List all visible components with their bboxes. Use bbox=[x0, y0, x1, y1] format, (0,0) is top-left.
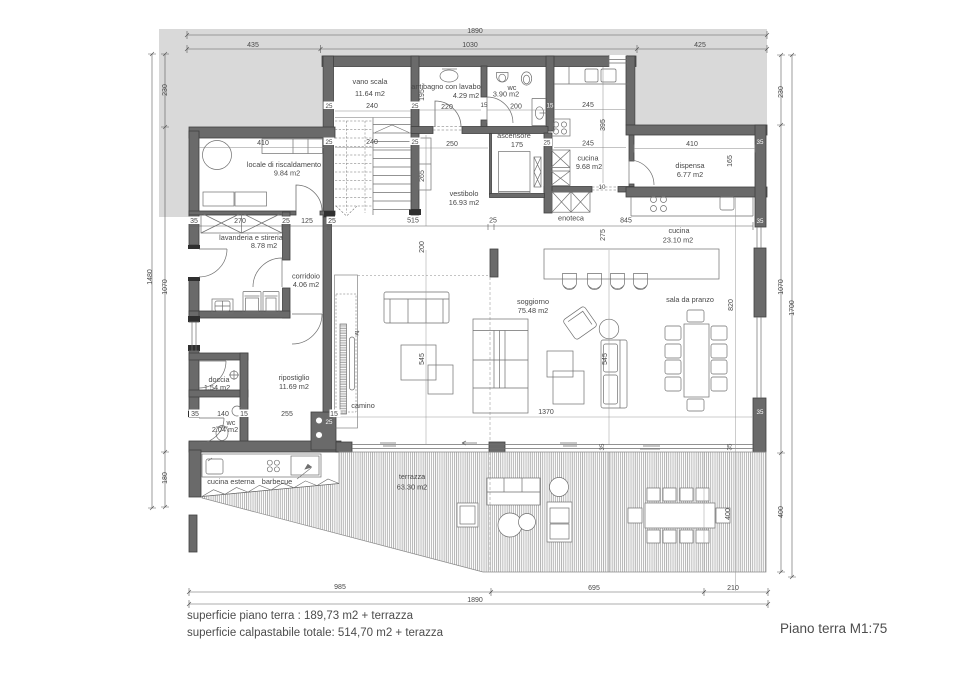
svg-text:soggiorno: soggiorno bbox=[517, 297, 549, 306]
svg-text:1890: 1890 bbox=[467, 597, 483, 604]
svg-text:1890: 1890 bbox=[467, 28, 483, 35]
svg-text:23.10 m2: 23.10 m2 bbox=[663, 236, 693, 245]
svg-text:230: 230 bbox=[162, 84, 169, 96]
svg-text:545: 545 bbox=[602, 353, 609, 365]
svg-text:9.68 m2: 9.68 m2 bbox=[576, 162, 602, 171]
svg-text:cucina: cucina bbox=[668, 226, 690, 235]
svg-text:210: 210 bbox=[727, 585, 739, 592]
svg-text:ascensore: ascensore bbox=[497, 131, 531, 140]
svg-text:15: 15 bbox=[547, 103, 554, 110]
svg-text:35: 35 bbox=[757, 139, 764, 146]
svg-text:35: 35 bbox=[599, 443, 606, 450]
svg-text:35: 35 bbox=[191, 411, 199, 418]
svg-text:cucina esterna: cucina esterna bbox=[207, 477, 255, 486]
svg-text:165: 165 bbox=[727, 155, 734, 167]
svg-text:8.78 m2: 8.78 m2 bbox=[251, 241, 277, 250]
svg-text:25: 25 bbox=[282, 218, 290, 225]
svg-text:10: 10 bbox=[599, 184, 606, 191]
svg-text:195: 195 bbox=[419, 89, 426, 101]
svg-text:1030: 1030 bbox=[462, 42, 478, 49]
svg-text:985: 985 bbox=[334, 584, 346, 591]
svg-text:superficie calpastabile totale: superficie calpastabile totale: 514,70 m… bbox=[187, 627, 444, 639]
svg-text:enoteca: enoteca bbox=[558, 214, 585, 223]
svg-text:250: 250 bbox=[446, 141, 458, 148]
svg-text:845: 845 bbox=[620, 218, 632, 225]
svg-text:35: 35 bbox=[727, 443, 734, 450]
svg-text:255: 255 bbox=[281, 411, 293, 418]
svg-text:545: 545 bbox=[419, 353, 426, 365]
svg-text:1070: 1070 bbox=[162, 279, 169, 295]
svg-text:4.29 m2: 4.29 m2 bbox=[453, 91, 479, 100]
svg-text:1070: 1070 bbox=[778, 279, 785, 295]
svg-text:25: 25 bbox=[544, 140, 551, 147]
svg-text:410: 410 bbox=[686, 141, 698, 148]
svg-text:240: 240 bbox=[366, 103, 378, 110]
svg-text:4.06 m2: 4.06 m2 bbox=[293, 280, 319, 289]
svg-text:3.90 m2: 3.90 m2 bbox=[493, 90, 519, 99]
svg-text:1700: 1700 bbox=[789, 300, 796, 316]
svg-text:200: 200 bbox=[419, 241, 426, 253]
svg-text:245: 245 bbox=[582, 102, 594, 109]
svg-text:25: 25 bbox=[326, 419, 333, 426]
svg-text:1480: 1480 bbox=[147, 269, 154, 285]
svg-text:11.64 m2: 11.64 m2 bbox=[355, 89, 385, 98]
svg-text:275: 275 bbox=[600, 229, 607, 241]
svg-text:240: 240 bbox=[366, 139, 378, 146]
svg-text:25: 25 bbox=[326, 103, 333, 110]
svg-text:395: 395 bbox=[600, 119, 607, 131]
svg-text:vestibolo: vestibolo bbox=[450, 189, 479, 198]
svg-text:265: 265 bbox=[419, 170, 426, 182]
svg-text:63.30 m2: 63.30 m2 bbox=[397, 483, 427, 492]
svg-text:1.54 m2: 1.54 m2 bbox=[204, 383, 230, 392]
svg-text:15: 15 bbox=[240, 411, 248, 418]
svg-text:1370: 1370 bbox=[538, 409, 554, 416]
svg-text:11.69 m2: 11.69 m2 bbox=[279, 382, 309, 391]
svg-text:400: 400 bbox=[778, 506, 785, 518]
svg-text:515: 515 bbox=[407, 218, 419, 225]
svg-text:140: 140 bbox=[217, 411, 229, 418]
svg-text:245: 245 bbox=[582, 141, 594, 148]
svg-text:35: 35 bbox=[757, 409, 764, 416]
svg-text:180: 180 bbox=[162, 472, 169, 484]
svg-text:2.04 m2: 2.04 m2 bbox=[212, 425, 238, 434]
svg-text:16.93 m2: 16.93 m2 bbox=[449, 198, 479, 207]
svg-text:25: 25 bbox=[412, 103, 419, 110]
svg-text:terrazza: terrazza bbox=[399, 472, 426, 481]
svg-text:125: 125 bbox=[301, 218, 313, 225]
svg-text:25: 25 bbox=[489, 218, 497, 225]
svg-text:425: 425 bbox=[694, 42, 706, 49]
svg-text:220: 220 bbox=[441, 104, 453, 111]
svg-text:400: 400 bbox=[725, 508, 732, 520]
svg-text:25: 25 bbox=[326, 139, 333, 146]
svg-text:ripostiglio: ripostiglio bbox=[279, 373, 310, 382]
svg-text:175: 175 bbox=[511, 140, 523, 149]
svg-text:270: 270 bbox=[234, 218, 246, 225]
svg-text:230: 230 bbox=[778, 86, 785, 98]
svg-text:dispensa: dispensa bbox=[675, 161, 705, 170]
svg-text:15: 15 bbox=[330, 411, 338, 418]
svg-text:35: 35 bbox=[190, 218, 198, 225]
svg-text:barbecue: barbecue bbox=[262, 477, 292, 486]
svg-text:25: 25 bbox=[412, 139, 419, 146]
svg-text:15: 15 bbox=[481, 102, 488, 109]
svg-text:75.48 m2: 75.48 m2 bbox=[518, 306, 548, 315]
svg-text:435: 435 bbox=[247, 42, 259, 49]
svg-text:35: 35 bbox=[757, 218, 764, 225]
svg-text:695: 695 bbox=[588, 585, 600, 592]
svg-text:6.77 m2: 6.77 m2 bbox=[677, 170, 703, 179]
svg-text:410: 410 bbox=[257, 140, 269, 147]
svg-text:camino: camino bbox=[351, 401, 375, 410]
svg-text:vano scala: vano scala bbox=[353, 77, 389, 86]
svg-text:9.84 m2: 9.84 m2 bbox=[274, 169, 300, 178]
svg-text:Piano terra M1:75: Piano terra M1:75 bbox=[780, 621, 887, 636]
svg-text:200: 200 bbox=[510, 104, 522, 111]
svg-text:superficie piano terra : 189,7: superficie piano terra : 189,73 m2 + ter… bbox=[187, 610, 414, 622]
svg-text:sala da pranzo: sala da pranzo bbox=[666, 295, 714, 304]
svg-text:25: 25 bbox=[328, 218, 336, 225]
svg-text:820: 820 bbox=[728, 299, 735, 311]
